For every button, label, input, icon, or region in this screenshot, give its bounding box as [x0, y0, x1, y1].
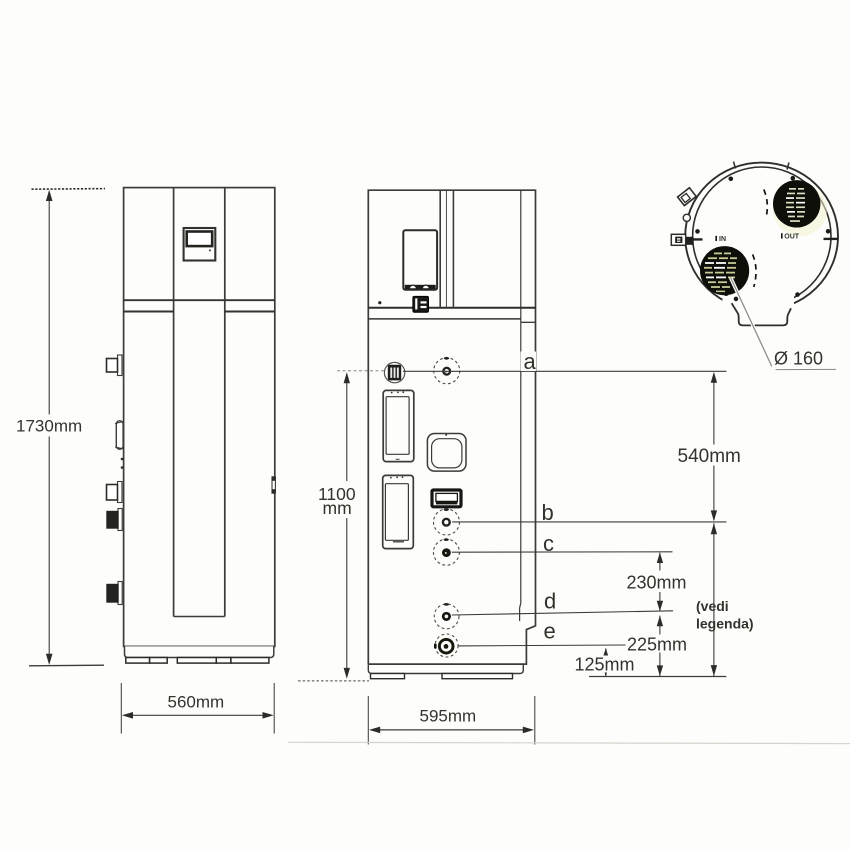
svg-text:IN: IN: [719, 236, 726, 243]
svg-text:540mm: 540mm: [678, 446, 741, 467]
svg-text:595mm: 595mm: [420, 707, 477, 726]
svg-text:Ø 160: Ø 160: [774, 349, 823, 369]
svg-text:e: e: [544, 619, 556, 644]
svg-text:125mm: 125mm: [575, 655, 635, 675]
svg-text:560mm: 560mm: [168, 693, 225, 712]
svg-text:1730mm: 1730mm: [16, 417, 82, 436]
svg-text:d: d: [544, 589, 556, 614]
svg-text:225mm: 225mm: [627, 635, 687, 655]
svg-text:b: b: [542, 500, 554, 525]
svg-text:230mm: 230mm: [627, 573, 687, 593]
svg-text:c: c: [543, 531, 554, 556]
svg-text:(vedi: (vedi: [696, 598, 729, 614]
svg-text:a: a: [524, 349, 537, 374]
svg-text:legenda): legenda): [696, 616, 754, 632]
svg-text:mm: mm: [323, 498, 352, 518]
svg-text:OUT: OUT: [784, 234, 800, 241]
